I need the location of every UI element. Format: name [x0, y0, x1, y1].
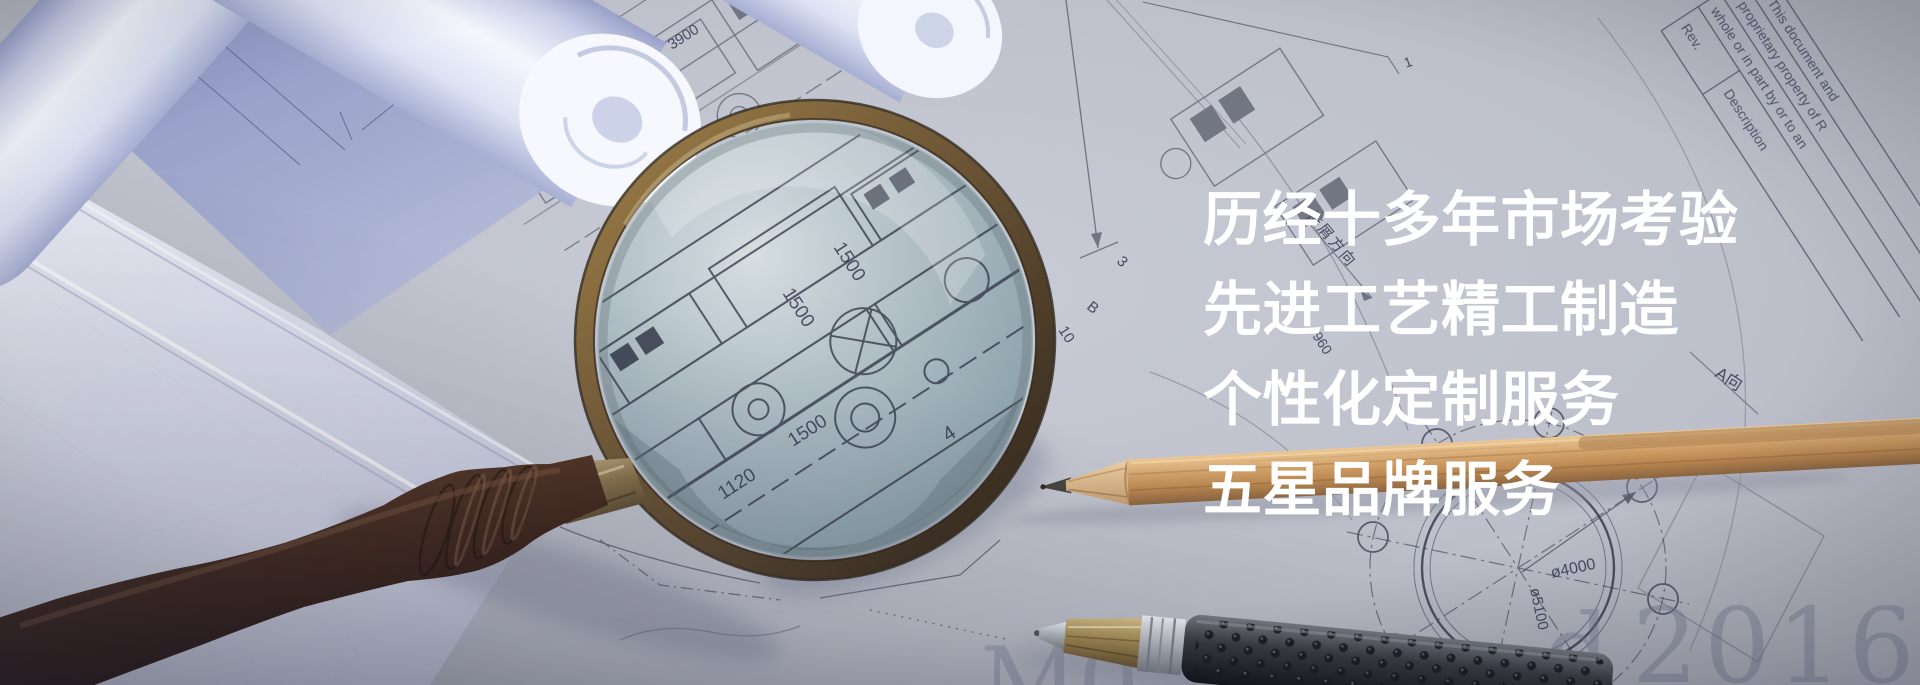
- hero-line-1: 历经十多年市场考验: [1203, 175, 1739, 265]
- hero-banner: 2016— d M0 Bpf 3900 1 3 B 10 960 排屑方向 A向…: [0, 0, 1920, 685]
- hero-line-2: 先进工艺精工制造: [1203, 265, 1739, 355]
- hero-line-4: 五星品牌服务: [1203, 445, 1739, 535]
- hero-slogan: 历经十多年市场考验 先进工艺精工制造 个性化定制服务 五星品牌服务: [1203, 175, 1739, 535]
- hero-line-3: 个性化定制服务: [1203, 355, 1739, 445]
